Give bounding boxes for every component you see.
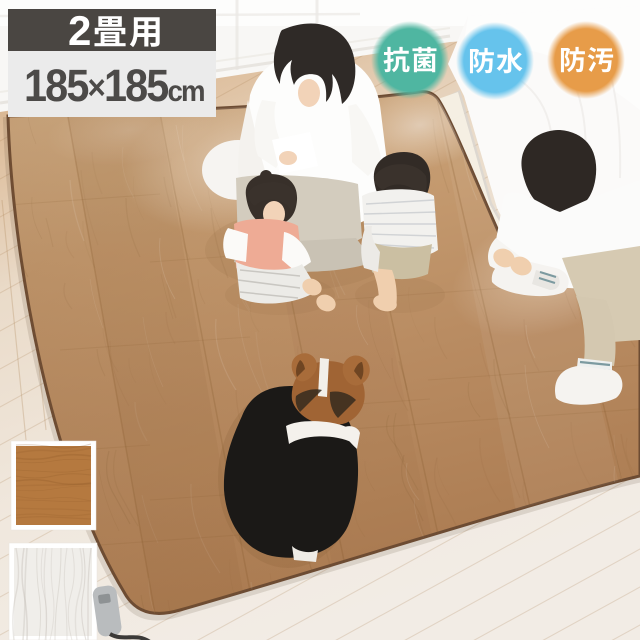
svg-text:2: 2 <box>68 7 91 54</box>
